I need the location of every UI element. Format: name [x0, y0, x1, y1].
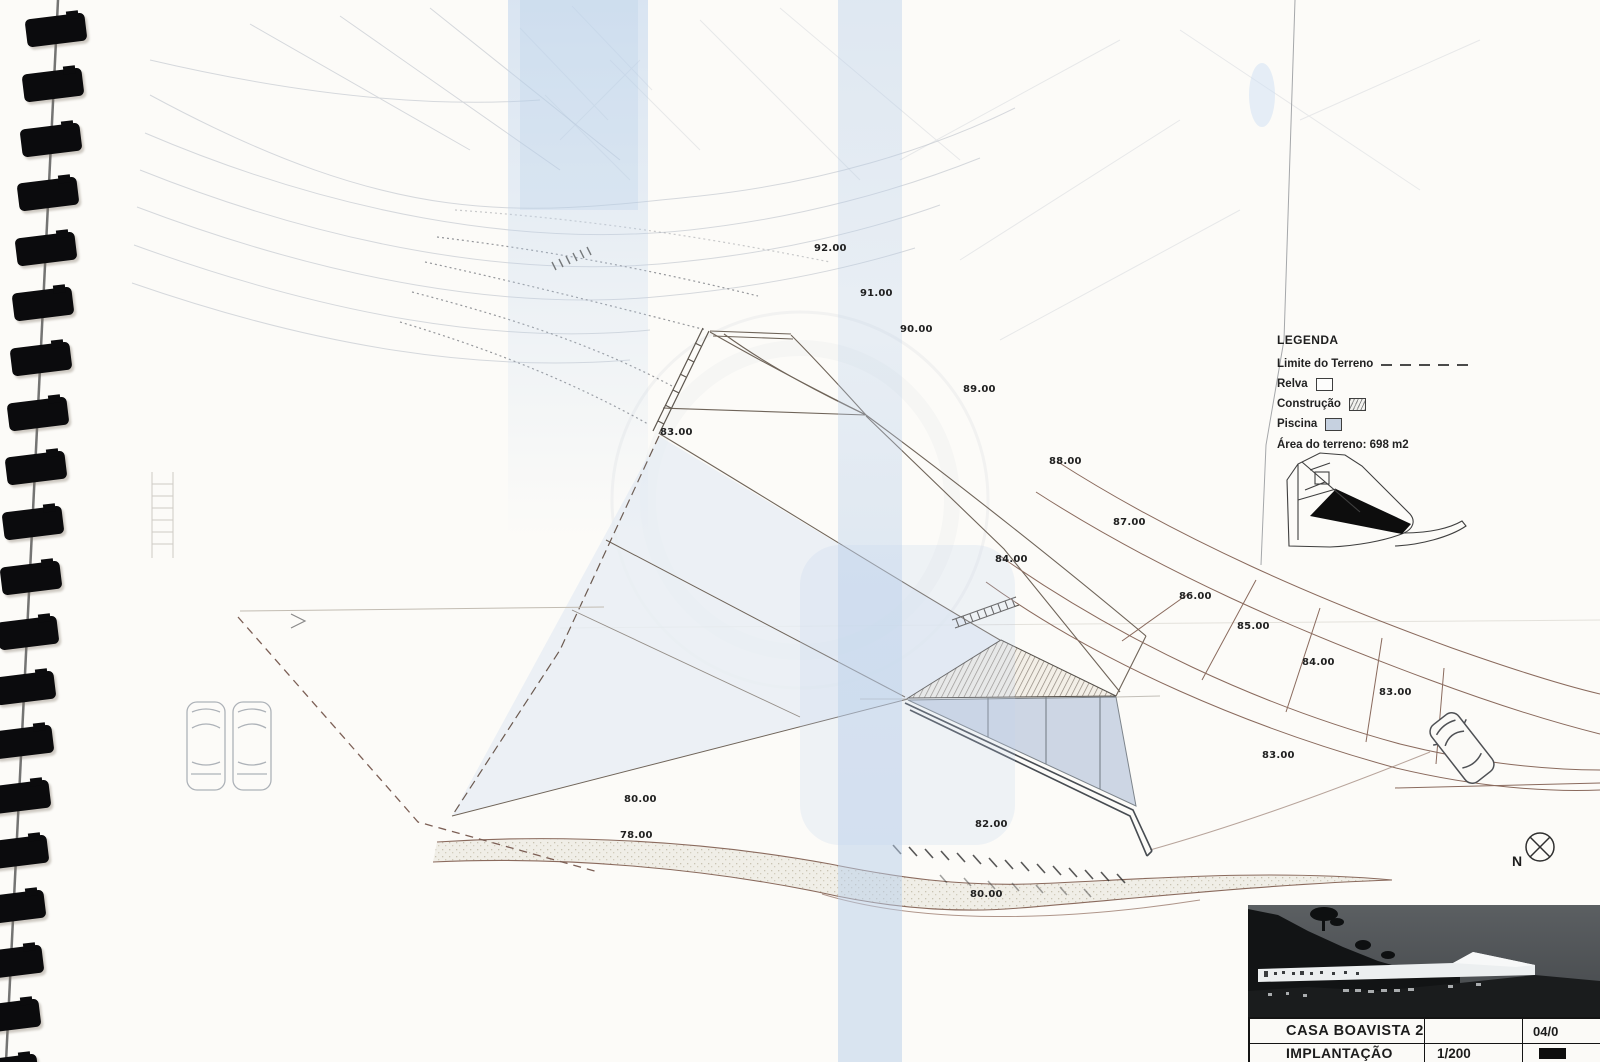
legend-item: Relva [1277, 374, 1475, 394]
legend-swatch-pool [1325, 418, 1342, 431]
drawing-scale: 1/200 [1425, 1044, 1523, 1062]
car-icon [187, 702, 225, 790]
legend: LEGENDA Limite do TerrenoRelvaConstrução… [1277, 333, 1475, 451]
binding-wire [6, 0, 58, 1062]
contour-lines-right [520, 6, 1480, 340]
north-label: N [1512, 853, 1522, 869]
location-sketch [1287, 453, 1466, 547]
date-fragment: 04/0 [1523, 1019, 1600, 1043]
car-icon [1423, 707, 1500, 790]
legend-swatch-hatch [1349, 398, 1366, 411]
project-name: CASA BOAVISTA 2 [1250, 1019, 1425, 1043]
legend-item: Limite do Terreno [1277, 354, 1475, 374]
black-mark [1539, 1048, 1566, 1059]
legend-item: Piscina [1277, 414, 1475, 434]
legend-area-note: Área do terreno: 698 m2 [1277, 439, 1475, 451]
legend-title: LEGENDA [1277, 333, 1475, 347]
legend-swatch-empty [1316, 378, 1333, 391]
revision-mark-cell [1523, 1044, 1600, 1062]
legend-item-label: Construção [1277, 398, 1341, 410]
arrow-marker [291, 614, 305, 628]
legend-items: Limite do TerrenoRelvaConstruçãoPiscina [1277, 354, 1475, 434]
scan-blue-bands [508, 0, 1275, 1062]
legend-item-label: Relva [1277, 378, 1308, 390]
drawing-name: IMPLANTAÇÃO [1250, 1044, 1425, 1062]
car-icon [233, 702, 271, 790]
legend-item: Construção [1277, 394, 1475, 414]
site-plan-drawing: N [0, 0, 1600, 1062]
model-photo-image [1248, 905, 1600, 1017]
left-ladder-mark [152, 472, 173, 558]
scanned-page: N 92.0091.0090.0089.0088.0087.0084.0086.… [0, 0, 1600, 1062]
parked-cars [187, 702, 271, 790]
compass-icon [1526, 833, 1554, 861]
legend-item-label: Piscina [1277, 418, 1317, 430]
legend-item-label: Limite do Terreno [1277, 358, 1373, 370]
title-block: CASA BOAVISTA 2 04/0 IMPLANTAÇÃO 1/200 [1248, 1017, 1600, 1062]
title-block-empty-cell [1425, 1019, 1523, 1043]
legend-swatch-dash [1381, 364, 1475, 366]
model-photo [1248, 905, 1600, 1017]
